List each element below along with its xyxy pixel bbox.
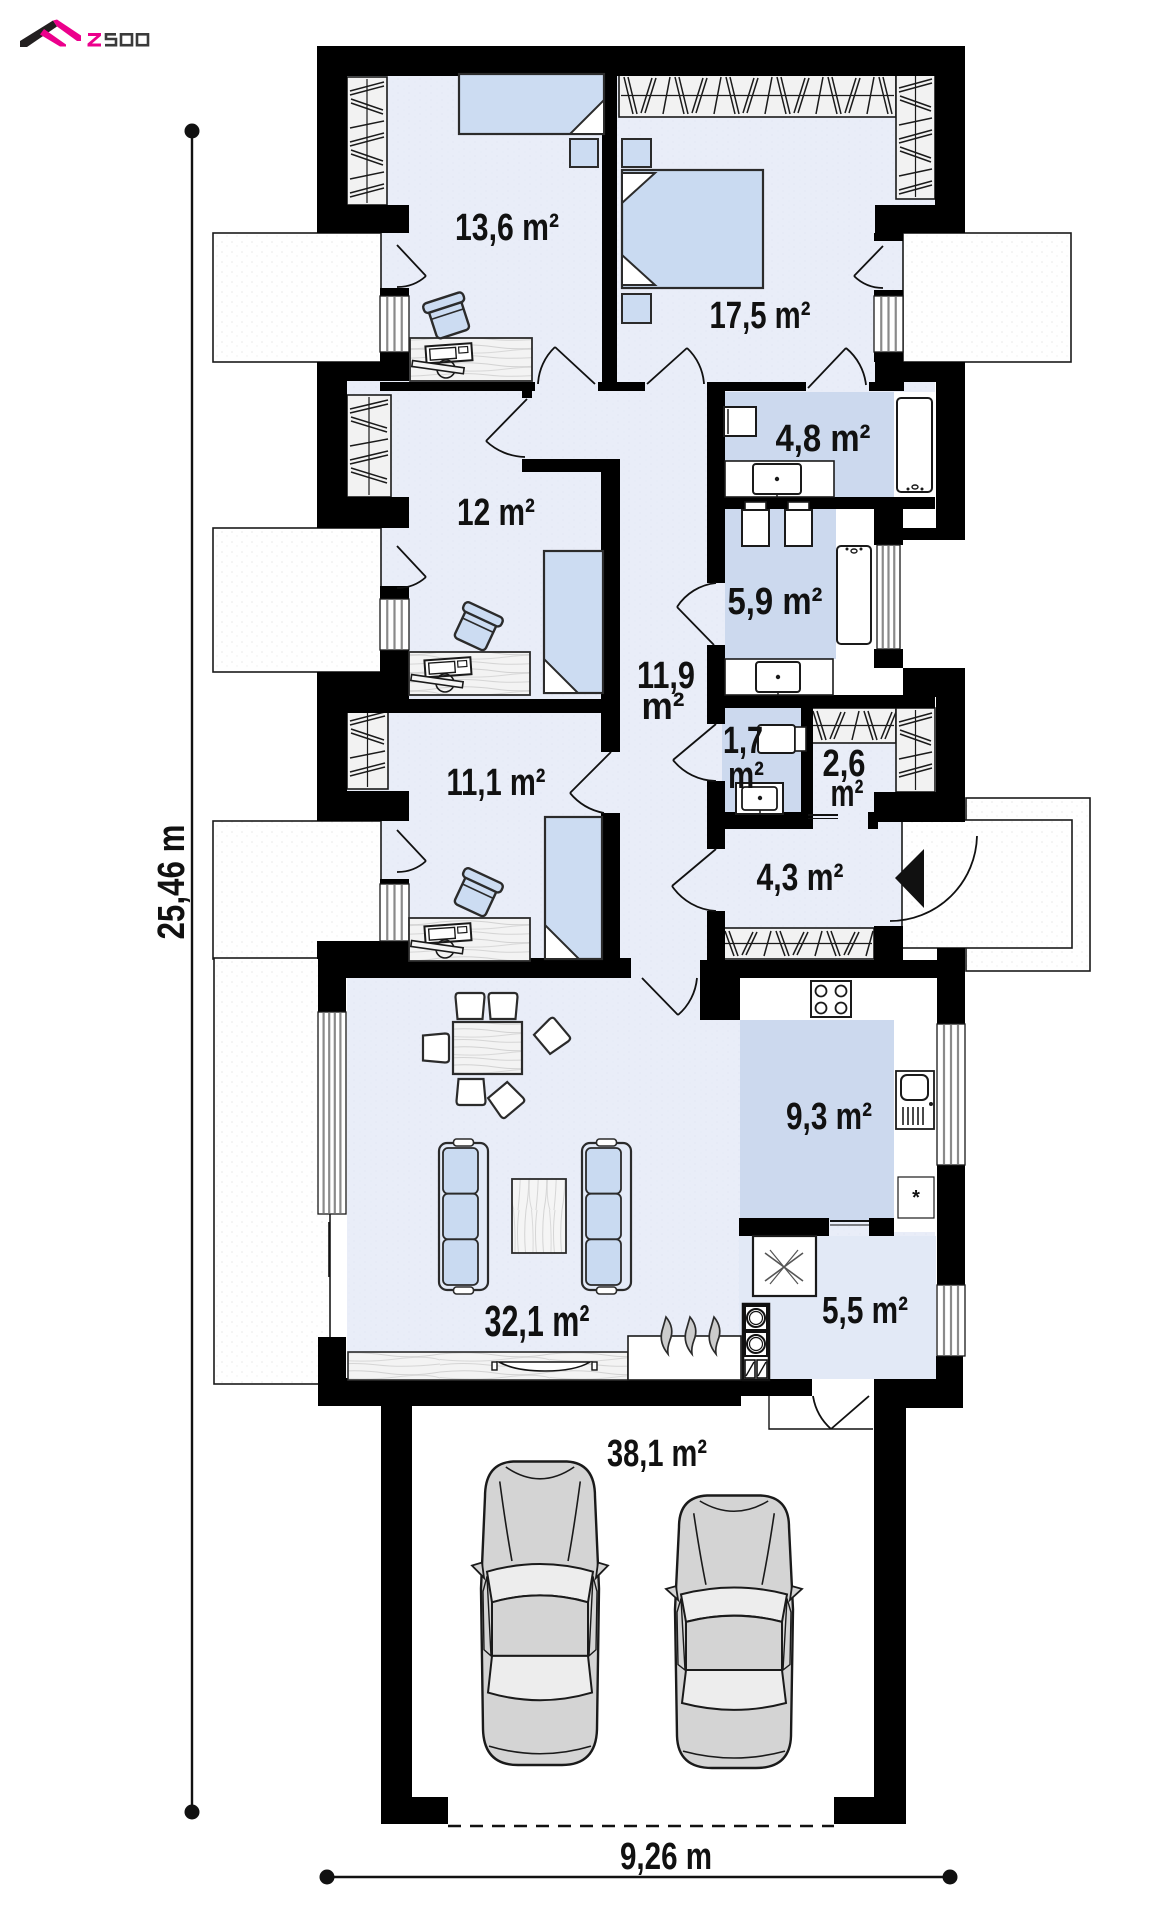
svg-text:m²: m² [728, 755, 764, 797]
svg-text:4,8 m²: 4,8 m² [776, 418, 871, 460]
svg-text:9,3 m²: 9,3 m² [786, 1096, 872, 1138]
svg-text:38,1 m²: 38,1 m² [607, 1433, 707, 1475]
svg-text:11,1 m²: 11,1 m² [447, 762, 546, 804]
svg-text:12 m²: 12 m² [457, 492, 535, 534]
svg-text:32,1 m²: 32,1 m² [485, 1297, 590, 1346]
svg-text:5,9 m²: 5,9 m² [728, 581, 823, 623]
svg-text:4,3 m²: 4,3 m² [757, 857, 844, 899]
svg-text:m²: m² [831, 773, 864, 815]
svg-text:13,6 m²: 13,6 m² [455, 207, 559, 249]
svg-text:5,5 m²: 5,5 m² [822, 1290, 908, 1332]
svg-text:9,26 m: 9,26 m [620, 1836, 712, 1878]
svg-text:m²: m² [642, 686, 685, 728]
svg-text:17,5 m²: 17,5 m² [710, 295, 811, 337]
svg-text:25,46 m: 25,46 m [151, 825, 193, 940]
svg-text:*: * [912, 1187, 920, 1209]
